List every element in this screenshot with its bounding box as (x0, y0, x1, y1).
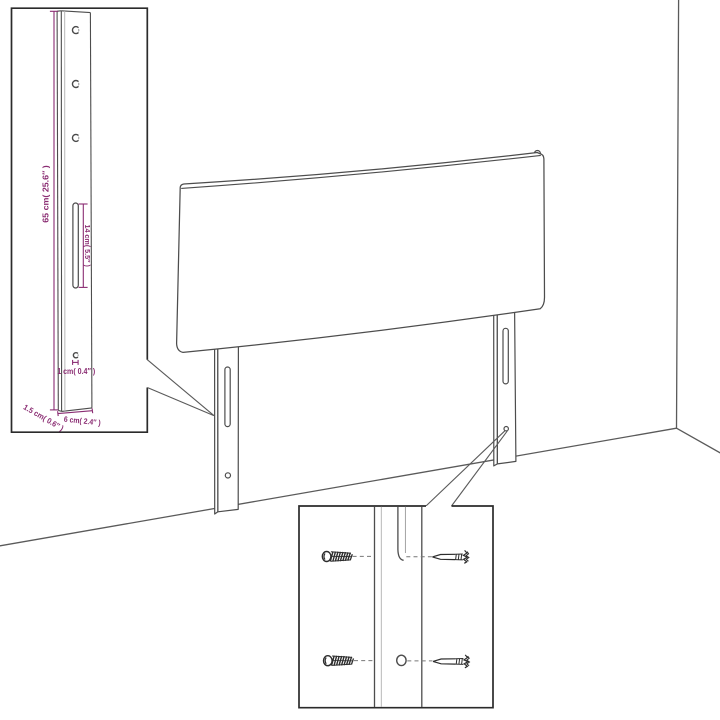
svg-text:1 cm( 0.4″ ): 1 cm( 0.4″ ) (57, 367, 95, 376)
svg-text:65 cm( 25.6″ ): 65 cm( 25.6″ ) (40, 165, 50, 223)
svg-text:14 cm( 5.5″ ): 14 cm( 5.5″ ) (83, 224, 92, 267)
